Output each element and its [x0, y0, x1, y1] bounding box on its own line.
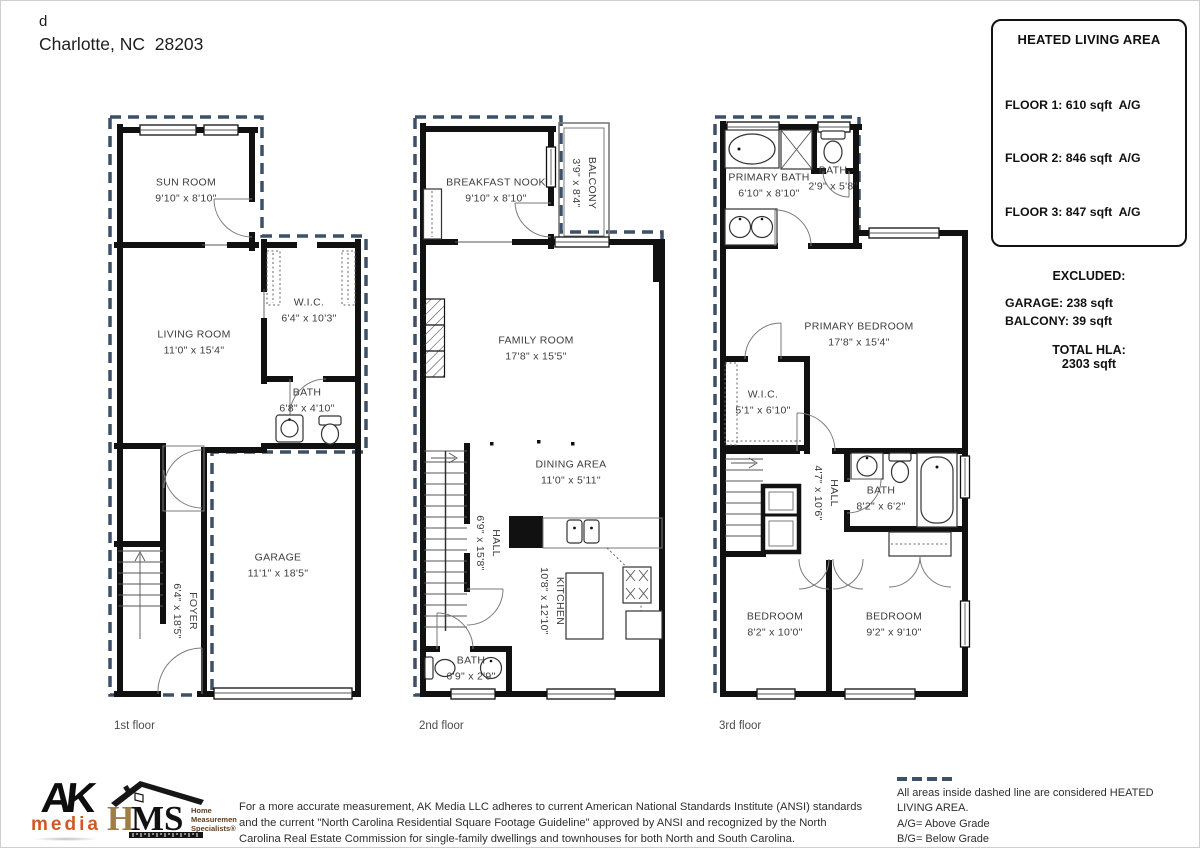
- address-line1: d: [39, 13, 47, 30]
- floor1-caption: 1st floor: [114, 720, 155, 732]
- hla-floor-2: FLOOR 2: 846 sqft A/G: [1005, 150, 1173, 168]
- dashed-line-sample-icon: [897, 777, 955, 781]
- stove-icon: [623, 567, 651, 603]
- room-label-hall: HALL4'7" x 10'6": [809, 465, 841, 520]
- bedroom-closet-icon: [889, 532, 951, 587]
- note-above-grade: A/G= Above Grade: [897, 817, 1192, 832]
- windows: [140, 125, 238, 135]
- hla-total-label: TOTAL HLA:: [1005, 343, 1173, 357]
- floor1-plan: SUN ROOM9'10" x 8'10" LIVING ROOM11'0" x…: [106, 111, 371, 701]
- floorplan-page: d Charlotte, NC 28203 HEATED LIVING AREA…: [0, 0, 1200, 848]
- room-label-primary-bedroom: PRIMARY BEDROOM17'8" x 15'4": [804, 319, 913, 351]
- hla-total-value: 2303 sqft: [1005, 357, 1173, 371]
- room-label-bath: BATH6'8" x 4'10": [279, 385, 334, 417]
- hms-tagline-2: Measurement: [191, 815, 237, 824]
- room-label-hall-bath: BATH8'2" x 6'2": [856, 483, 905, 515]
- hla-excluded-balcony: BALCONY: 39 sqft: [1005, 313, 1173, 331]
- address-line2: Charlotte, NC 28203: [39, 34, 203, 55]
- hla-excluded-garage: GARAGE: 238 sqft: [1005, 295, 1173, 313]
- legend-notes: All areas inside dashed line are conside…: [897, 777, 1192, 848]
- room-label-balcony: BALCONY3'9" x 8'4": [567, 157, 599, 209]
- hla-excluded-label: EXCLUDED:: [1005, 269, 1173, 283]
- room-label-wic: W.I.C.5'1" x 6'10": [735, 387, 790, 419]
- room-label-living-room: LIVING ROOM11'0" x 15'4": [157, 327, 230, 359]
- floor3-plan: PRIMARY BATH6'10" x 8'10" BATH2'9" x 5'8…: [711, 111, 971, 701]
- room-label-sun-room: SUN ROOM9'10" x 8'10": [155, 175, 217, 207]
- floor2-plan: BREAKFAST NOOK9'10" x 8'10" BALCONY3'9" …: [411, 111, 666, 701]
- room-label-foyer: FOYER6'4" x 18'5": [168, 583, 200, 638]
- note-heated-area: All areas inside dashed line are conside…: [897, 786, 1192, 817]
- room-label-bedroom-right: BEDROOM9'2" x 9'10": [866, 609, 922, 641]
- hla-floor-3: FLOOR 3: 847 sqft A/G: [1005, 204, 1173, 222]
- sink-icon: [276, 415, 303, 442]
- room-label-breakfast-nook: BREAKFAST NOOK9'10" x 8'10": [446, 175, 546, 207]
- hla-excluded-items: GARAGE: 238 sqft BALCONY: 39 sqft: [1005, 295, 1173, 331]
- floor3-caption: 3rd floor: [719, 720, 761, 732]
- floor2-caption: 2nd floor: [419, 720, 464, 732]
- pantry-icon: [424, 189, 442, 239]
- hms-tagline-1: Home: [191, 806, 212, 815]
- hms-ruler-icon: [129, 832, 203, 838]
- kitchen-island: [566, 573, 603, 639]
- ak-logo-text: AK: [25, 780, 107, 816]
- hms-tagline-3: Specialists®: [191, 824, 236, 833]
- toilet-icon: [319, 416, 341, 444]
- room-label-garage: GARAGE11'1" x 18'5": [248, 550, 309, 582]
- bathtub-icon-hall-bath: [917, 453, 957, 527]
- stairs-icon: [118, 551, 163, 639]
- hla-title: HEATED LIVING AREA: [1005, 32, 1173, 47]
- toilet-icon-small-bath: [821, 131, 845, 163]
- room-label-dining-area: DINING AREA11'0" x 5'11": [536, 457, 607, 489]
- sink-icon-hall-bath: [851, 453, 883, 479]
- linen-closet-icon: [763, 486, 799, 552]
- room-label-hall: HALL6'9" x 15'8": [471, 515, 503, 570]
- room-label-primary-bath: PRIMARY BATH6'10" x 8'10": [728, 170, 809, 202]
- fireplace-icon: [424, 299, 445, 377]
- shower-icon: [781, 130, 812, 169]
- hms-logo: H MS Home Measurement Specialists®: [105, 777, 237, 846]
- hla-floor-1: FLOOR 1: 610 sqft A/G: [1005, 97, 1173, 115]
- room-label-bedroom-left: BEDROOM8'2" x 10'0": [747, 609, 803, 641]
- room-label-kitchen: KITCHEN10'8" x 12'10": [535, 567, 567, 635]
- room-label-wic: W.I.C.6'4" x 10'3": [281, 295, 336, 327]
- hla-floor-totals: FLOOR 1: 610 sqft A/G FLOOR 2: 846 sqft …: [1005, 61, 1173, 257]
- room-label-bath: BATH6'9" x 2'9": [446, 653, 495, 685]
- note-below-grade: B/G= Below Grade: [897, 832, 1192, 847]
- wall-post-dots: [490, 440, 575, 446]
- closet-icon: [163, 446, 204, 511]
- stairs-icon: [424, 451, 467, 631]
- double-sink-icon: [725, 209, 777, 245]
- room-label-family-room: FAMILY ROOM17'8" x 15'5": [498, 333, 573, 365]
- ak-logo-shadow: [33, 837, 99, 841]
- heated-living-area-box: HEATED LIVING AREA FLOOR 1: 610 sqft A/G…: [991, 19, 1187, 247]
- bathtub-icon: [725, 130, 779, 168]
- stairs-icon: [725, 458, 763, 536]
- room-label-bath-small: BATH2'9" x 5'8": [808, 163, 857, 195]
- ak-media-logo: AK media: [27, 780, 105, 841]
- hms-logo-graphic: H MS Home Measurement Specialists®: [105, 777, 237, 841]
- dishwasher-icon: [626, 611, 662, 639]
- toilet-icon-hall-bath: [889, 453, 911, 483]
- measurement-disclaimer: For a more accurate measurement, AK Medi…: [239, 800, 867, 848]
- garage-door: [214, 688, 352, 699]
- door-arcs: [437, 203, 551, 649]
